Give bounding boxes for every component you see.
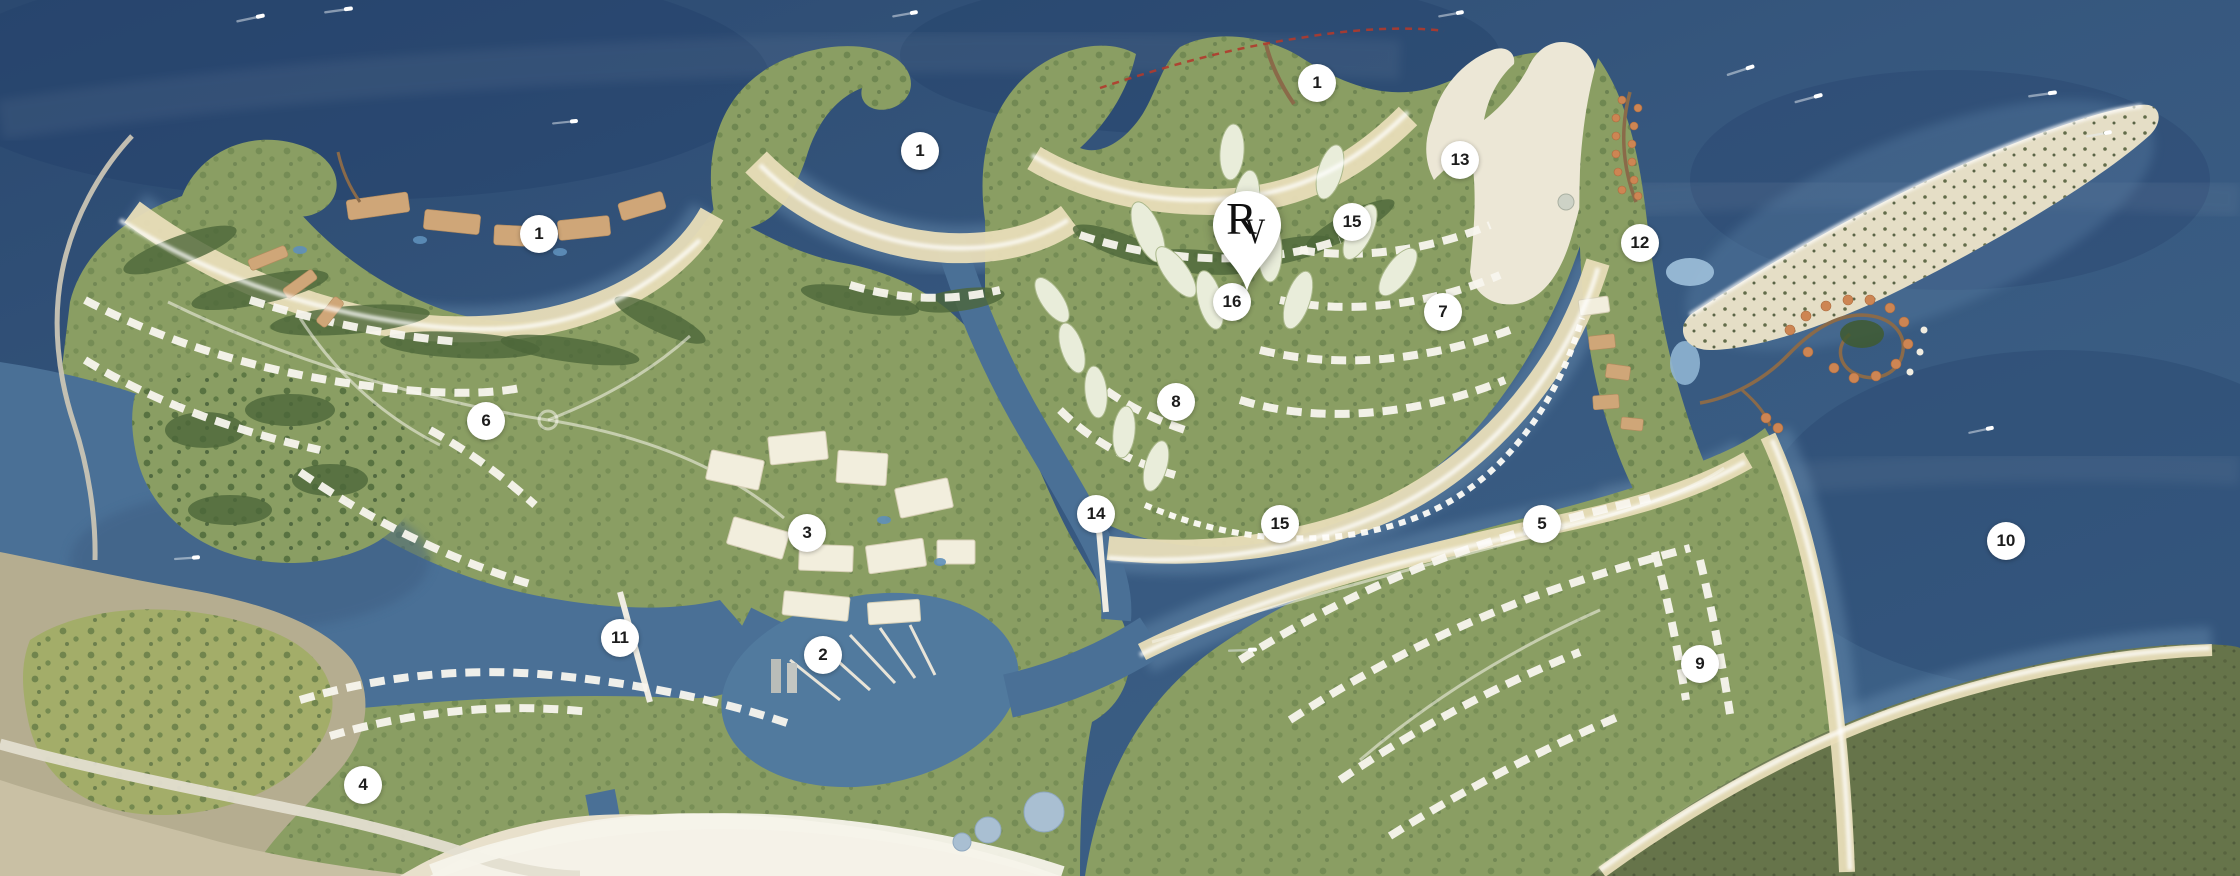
brand-monogram: RV (1209, 189, 1285, 249)
map-marker-2[interactable]: 2 (804, 636, 842, 674)
map-marker-10[interactable]: 10 (1987, 522, 2025, 560)
map-marker-6[interactable]: 6 (467, 402, 505, 440)
map-marker-9[interactable]: 9 (1681, 645, 1719, 683)
map-marker-7[interactable]: 7 (1424, 293, 1462, 331)
map-marker-5[interactable]: 5 (1523, 505, 1561, 543)
map-marker-8[interactable]: 8 (1157, 383, 1195, 421)
map-marker-1[interactable]: 1 (520, 215, 558, 253)
marker-layer: 111131512167863141551011294 (0, 0, 2240, 876)
map-marker-15[interactable]: 15 (1333, 203, 1371, 241)
map-marker-15[interactable]: 15 (1261, 505, 1299, 543)
brand-location-pin[interactable]: RV (1209, 181, 1285, 293)
map-marker-14[interactable]: 14 (1077, 495, 1115, 533)
map-marker-3[interactable]: 3 (788, 514, 826, 552)
map-marker-1[interactable]: 1 (901, 132, 939, 170)
map-marker-1[interactable]: 1 (1298, 64, 1336, 102)
map-marker-11[interactable]: 11 (601, 619, 639, 657)
map-marker-12[interactable]: 12 (1621, 224, 1659, 262)
monogram-letter-v: V (1244, 201, 1265, 261)
map-marker-13[interactable]: 13 (1441, 141, 1479, 179)
map-marker-4[interactable]: 4 (344, 766, 382, 804)
masterplan-map: 111131512167863141551011294 RV (0, 0, 2240, 876)
